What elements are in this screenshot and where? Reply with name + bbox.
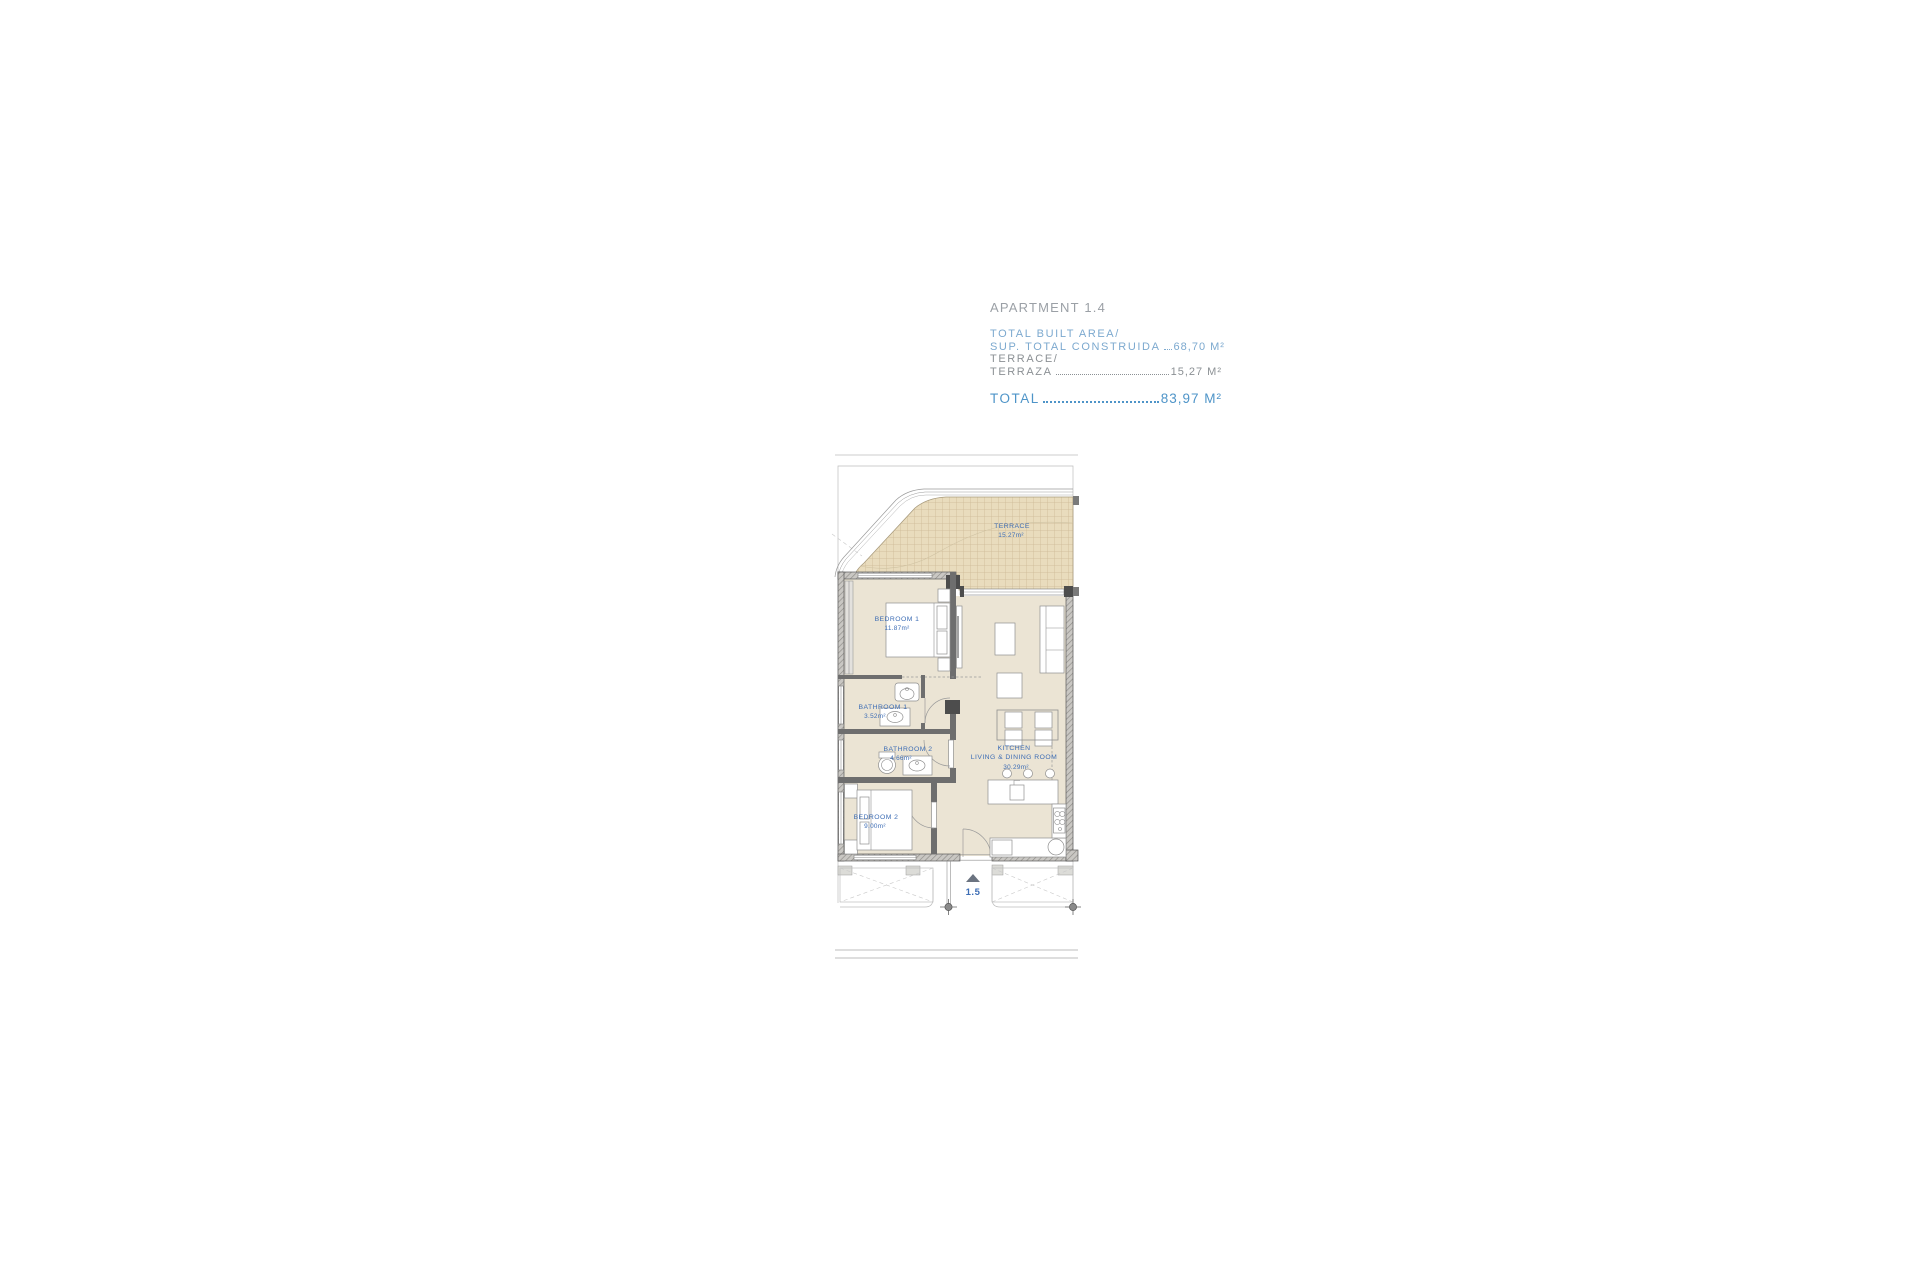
kitchen-sink [1048, 839, 1064, 855]
floor-plan: TERRACE 15.27m² [830, 446, 1086, 974]
survey-point [1065, 899, 1081, 915]
bathroom1-label: BATHROOM 1 [859, 704, 908, 711]
area-row: TERRAZA 15,27 M² [990, 366, 1222, 379]
total-label: TOTAL [990, 391, 1040, 406]
area-row: TERRACE/ [990, 353, 1222, 366]
window-left-wall [839, 686, 844, 844]
coffee-table [997, 673, 1022, 698]
apartment-title: APARTMENT 1.4 [990, 300, 1222, 315]
sideboard [995, 623, 1015, 655]
nightstand [845, 784, 858, 798]
lower-annotations: 1.5 [838, 861, 1081, 915]
bathroom2-label: BATHROOM 2 [884, 746, 933, 753]
survey-point [940, 899, 957, 915]
terrace-label: TERRACE [994, 523, 1030, 530]
apartment-info: APARTMENT 1.4 TOTAL BUILT AREA/ SUP. TOT… [990, 300, 1222, 406]
sofa [1040, 606, 1064, 673]
page: APARTMENT 1.4 TOTAL BUILT AREA/ SUP. TOT… [0, 0, 1920, 1280]
nightstand [938, 589, 950, 602]
unit-number: 1.5 [966, 887, 981, 898]
bedroom1-label: BEDROOM 1 [875, 616, 920, 623]
area-row: TOTAL BUILT AREA/ [990, 328, 1222, 341]
entry-marker: 1.5 [966, 874, 981, 898]
corner-wall [1066, 850, 1078, 861]
boundary-stub [1073, 496, 1079, 505]
area-label: SUP. TOTAL CONSTRUIDA [990, 341, 1161, 354]
bedroom2-area: 9.00m² [864, 823, 886, 830]
stool [1046, 769, 1055, 778]
dotted-leader [1056, 374, 1169, 375]
area-row: SUP. TOTAL CONSTRUIDA 68,70 M² [990, 341, 1222, 354]
entry-triangle-icon [966, 874, 980, 882]
area-value: 15,27 M² [1171, 366, 1222, 379]
bathroom1-area: 3.52m² [864, 713, 886, 720]
nightstand [938, 658, 950, 671]
boundary-stub [1073, 587, 1079, 596]
window-bedroom1-top [858, 573, 932, 578]
kitchen-area: 30.29m² [1003, 764, 1029, 771]
cooktop [1054, 808, 1066, 833]
kitchen-label2: LIVING & DINING ROOM [971, 754, 1057, 761]
area-label: TOTAL BUILT AREA/ [990, 328, 1120, 341]
area-label: TERRACE/ [990, 353, 1058, 366]
total-row: TOTAL 83,97 M² [990, 391, 1222, 406]
dotted-leader [1164, 349, 1172, 350]
area-label: TERRAZA [990, 366, 1053, 379]
total-value: 83,97 M² [1161, 391, 1222, 406]
area-value: 68,70 M² [1174, 341, 1225, 354]
bedroom2-label: BEDROOM 2 [854, 814, 899, 821]
kitchen-label: KITCHEN [998, 745, 1031, 752]
tv-unit [957, 606, 963, 668]
bedroom1-area: 11.87m² [884, 625, 909, 632]
dotted-leader [1043, 401, 1159, 403]
terrace-area: 15.27m² [998, 532, 1024, 539]
nightstand [845, 840, 858, 854]
bathroom2-area: 4.66m² [890, 755, 912, 762]
window-bedroom2-bottom [854, 855, 916, 860]
